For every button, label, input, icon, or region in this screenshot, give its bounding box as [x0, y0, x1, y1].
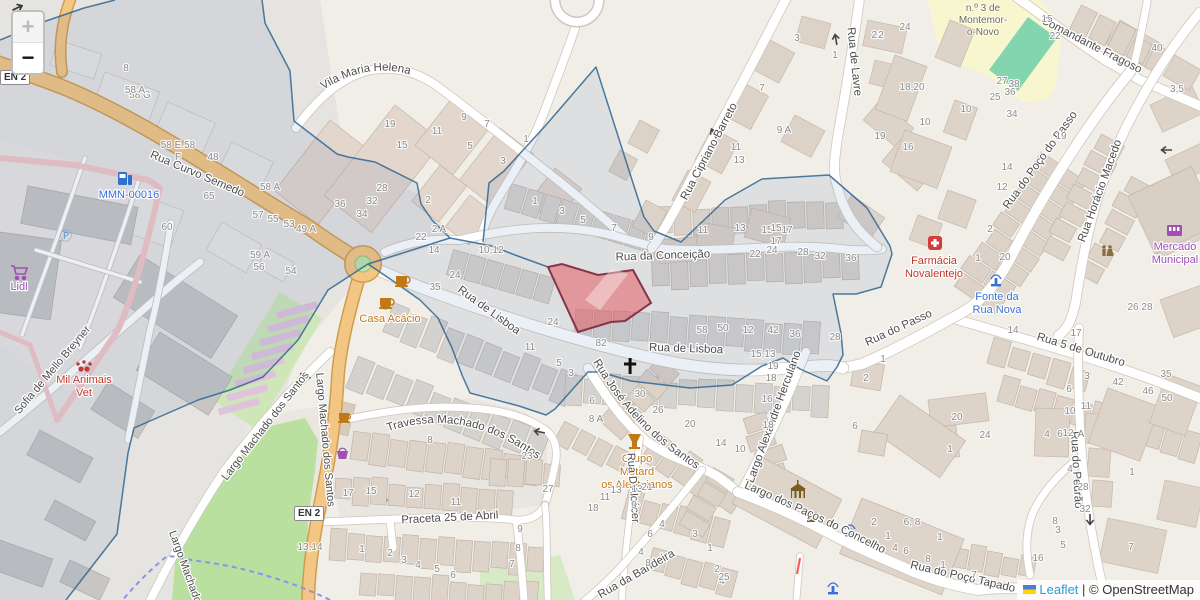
svg-text:6: 6 [903, 546, 909, 557]
svg-text:42: 42 [767, 325, 779, 336]
svg-text:15: 15 [1041, 14, 1053, 25]
svg-text:25: 25 [989, 92, 1001, 103]
svg-text:26 28: 26 28 [1127, 302, 1152, 313]
svg-text:4: 4 [659, 519, 665, 530]
svg-text:3: 3 [568, 368, 574, 379]
svg-text:1: 1 [937, 532, 943, 543]
svg-text:21: 21 [641, 482, 653, 493]
svg-text:o-Novo: o-Novo [967, 27, 1000, 38]
svg-text:56: 56 [253, 262, 265, 273]
svg-text:7: 7 [611, 223, 617, 234]
svg-text:19: 19 [384, 119, 396, 130]
svg-text:53: 53 [283, 219, 295, 230]
svg-text:20: 20 [684, 419, 696, 430]
svg-text:32: 32 [814, 251, 826, 262]
svg-text:8: 8 [123, 63, 129, 74]
svg-text:15: 15 [365, 486, 377, 497]
svg-text:1: 1 [975, 253, 981, 264]
svg-text:17: 17 [781, 225, 793, 236]
svg-text:Ⓟ: Ⓟ [60, 229, 72, 243]
svg-text:24: 24 [547, 317, 559, 328]
svg-text:Mercado: Mercado [1154, 241, 1197, 253]
svg-text:11: 11 [600, 492, 611, 503]
svg-text:7: 7 [484, 119, 490, 130]
svg-text:5: 5 [580, 215, 586, 226]
svg-text:11: 11 [525, 342, 536, 353]
svg-text:11: 11 [1081, 401, 1092, 412]
svg-text:Vet: Vet [76, 387, 92, 399]
svg-text:24: 24 [899, 22, 911, 33]
svg-text:35: 35 [1160, 369, 1172, 380]
svg-text:6: 6 [852, 421, 858, 432]
svg-text:4: 4 [1044, 429, 1050, 440]
svg-text:16: 16 [902, 142, 914, 153]
svg-text:1: 1 [940, 560, 946, 571]
svg-text:18,20: 18,20 [899, 82, 924, 93]
svg-text:24: 24 [979, 430, 991, 441]
svg-text:36: 36 [789, 329, 801, 340]
svg-text:8: 8 [427, 435, 433, 446]
svg-text:2: 2 [871, 517, 877, 528]
svg-text:19: 19 [1055, 131, 1067, 142]
svg-text:48: 48 [207, 152, 219, 163]
svg-text:14: 14 [428, 245, 440, 256]
svg-text:34: 34 [1006, 109, 1018, 120]
svg-text:9 A: 9 A [777, 125, 792, 136]
svg-text:3: 3 [1055, 525, 1061, 536]
svg-text:16: 16 [761, 394, 773, 405]
svg-text:14: 14 [1007, 325, 1019, 336]
svg-text:Casa Acácio: Casa Acácio [359, 313, 420, 325]
svg-text:28: 28 [829, 332, 841, 343]
svg-text:58 A: 58 A [260, 182, 280, 193]
svg-text:17: 17 [770, 236, 782, 247]
svg-text:36: 36 [845, 253, 857, 264]
svg-text:27: 27 [996, 76, 1008, 87]
svg-text:13,14: 13,14 [297, 542, 322, 553]
svg-text:9: 9 [648, 232, 654, 243]
svg-text:34: 34 [356, 209, 368, 220]
svg-text:24: 24 [449, 270, 461, 281]
svg-text:3: 3 [692, 529, 698, 540]
svg-text:18: 18 [587, 503, 599, 514]
svg-text:65: 65 [203, 191, 215, 202]
svg-text:1: 1 [523, 134, 529, 145]
svg-text:Montemor-: Montemor- [959, 15, 1007, 26]
svg-text:23: 23 [521, 451, 533, 462]
svg-text:6: 6 [647, 529, 653, 540]
svg-text:6: 6 [1066, 384, 1072, 395]
svg-text:17: 17 [1070, 328, 1082, 339]
svg-text:4: 4 [638, 547, 644, 558]
svg-text:18: 18 [762, 420, 774, 431]
svg-text:9: 9 [461, 112, 467, 123]
svg-text:22: 22 [749, 249, 761, 260]
svg-text:2: 2 [987, 224, 993, 235]
svg-text:35: 35 [429, 282, 441, 293]
svg-text:10: 10 [734, 444, 746, 455]
svg-text:27: 27 [542, 484, 554, 495]
svg-text:Lidl: Lidl [10, 281, 27, 293]
svg-text:1: 1 [1129, 467, 1135, 478]
svg-text:22: 22 [415, 232, 427, 243]
svg-text:8: 8 [515, 543, 521, 554]
svg-text:1: 1 [947, 444, 953, 455]
svg-text:15: 15 [396, 140, 408, 151]
svg-text:20: 20 [951, 412, 963, 423]
svg-text:10: 10 [1064, 406, 1076, 417]
svg-text:6: 6 [450, 570, 456, 581]
svg-text:3: 3 [500, 156, 506, 167]
svg-text:4: 4 [415, 560, 421, 571]
svg-text:3,5: 3,5 [1170, 84, 1184, 95]
svg-text:28: 28 [1077, 482, 1089, 493]
svg-text:2 A: 2 A [432, 224, 447, 235]
svg-text:19: 19 [767, 361, 779, 372]
svg-text:10: 10 [960, 104, 972, 115]
svg-text:59 A: 59 A [250, 250, 270, 261]
svg-text:MMN-00016: MMN-00016 [99, 189, 160, 201]
svg-text:Novalentejo: Novalentejo [905, 268, 963, 280]
svg-text:20: 20 [999, 252, 1011, 263]
svg-text:26: 26 [652, 405, 664, 416]
svg-text:42: 42 [1112, 377, 1124, 388]
svg-text:18: 18 [765, 373, 777, 384]
svg-text:7: 7 [1128, 542, 1134, 553]
svg-text:4: 4 [1067, 464, 1073, 475]
svg-text:28: 28 [376, 183, 388, 194]
svg-text:15: 15 [770, 223, 782, 234]
svg-text:Fonte da: Fonte da [975, 291, 1019, 303]
svg-text:6: 6 [589, 396, 595, 407]
svg-text:12: 12 [408, 489, 420, 500]
svg-text:13: 13 [610, 485, 622, 496]
svg-text:4: 4 [892, 543, 898, 554]
svg-text:32: 32 [1079, 504, 1091, 515]
svg-text:3: 3 [559, 206, 565, 217]
svg-text:58 A: 58 A [125, 85, 145, 96]
svg-text:15,13: 15,13 [750, 349, 775, 360]
svg-text:8 A: 8 A [589, 414, 604, 425]
svg-text:7: 7 [759, 83, 765, 94]
svg-text:57: 57 [252, 210, 264, 221]
svg-text:50: 50 [717, 323, 729, 334]
svg-text:2: 2 [878, 30, 884, 41]
svg-text:1: 1 [359, 544, 365, 555]
svg-text:A: A [1078, 429, 1085, 440]
svg-text:5: 5 [1060, 540, 1066, 551]
svg-text:1: 1 [880, 354, 886, 365]
svg-text:F: F [175, 152, 181, 163]
svg-text:49 A: 49 A [296, 224, 316, 235]
svg-text:11: 11 [731, 142, 742, 153]
svg-text:82: 82 [595, 338, 607, 349]
svg-text:9: 9 [631, 500, 637, 511]
svg-text:7: 7 [509, 559, 515, 570]
svg-text:5: 5 [434, 564, 440, 575]
svg-text:6: 6 [1057, 429, 1063, 440]
svg-text:28: 28 [797, 247, 809, 258]
svg-text:2: 2 [863, 373, 869, 384]
svg-text:2: 2 [425, 195, 431, 206]
svg-text:11: 11 [698, 225, 709, 236]
svg-text:40: 40 [1151, 43, 1163, 54]
svg-text:55: 55 [267, 214, 279, 225]
svg-text:3: 3 [794, 33, 800, 44]
svg-text:14: 14 [1001, 162, 1013, 173]
svg-text:32: 32 [366, 196, 378, 207]
svg-text:58 E.58: 58 E.58 [161, 140, 196, 151]
svg-text:1: 1 [885, 531, 891, 542]
svg-text:50: 50 [1161, 393, 1173, 404]
svg-text:8: 8 [645, 558, 651, 569]
svg-text:12: 12 [742, 325, 754, 336]
svg-text:10: 10 [919, 117, 931, 128]
svg-text:36: 36 [1004, 87, 1016, 98]
svg-text:30: 30 [634, 389, 646, 400]
svg-text:46: 46 [1142, 386, 1154, 397]
svg-text:8: 8 [925, 554, 931, 565]
svg-text:17: 17 [342, 488, 354, 499]
svg-text:13: 13 [733, 155, 745, 166]
svg-text:n.º 3 de: n.º 3 de [966, 3, 1001, 14]
svg-text:3: 3 [1084, 371, 1090, 382]
svg-text:25: 25 [718, 572, 730, 583]
svg-text:Rua Nova: Rua Nova [973, 304, 1023, 316]
svg-text:11: 11 [432, 126, 443, 137]
svg-text:6, 8: 6, 8 [904, 517, 921, 528]
svg-text:54: 54 [285, 266, 297, 277]
svg-text:14: 14 [715, 438, 727, 449]
svg-text:16: 16 [1032, 553, 1044, 564]
svg-text:5: 5 [556, 358, 562, 369]
svg-text:3: 3 [401, 555, 407, 566]
svg-text:19: 19 [874, 131, 886, 142]
svg-text:11: 11 [451, 497, 462, 508]
svg-text:12: 12 [1062, 428, 1074, 439]
svg-text:36: 36 [334, 199, 346, 210]
svg-text:Municipal: Municipal [1152, 254, 1198, 266]
svg-text:58: 58 [696, 325, 708, 336]
svg-text:1: 1 [832, 50, 838, 61]
svg-text:12: 12 [996, 182, 1008, 193]
svg-text:Mil Animais: Mil Animais [56, 374, 112, 386]
svg-text:Farmácia: Farmácia [911, 255, 958, 267]
svg-text:1: 1 [532, 196, 538, 207]
svg-text:22: 22 [1049, 31, 1061, 42]
svg-text:2: 2 [387, 548, 393, 559]
svg-text:10,12: 10,12 [478, 245, 503, 256]
svg-text:9: 9 [517, 524, 523, 535]
svg-text:1: 1 [707, 543, 713, 554]
svg-text:13: 13 [734, 223, 746, 234]
svg-text:60: 60 [161, 222, 173, 233]
svg-text:5: 5 [467, 141, 473, 152]
svg-text:7: 7 [971, 570, 977, 581]
